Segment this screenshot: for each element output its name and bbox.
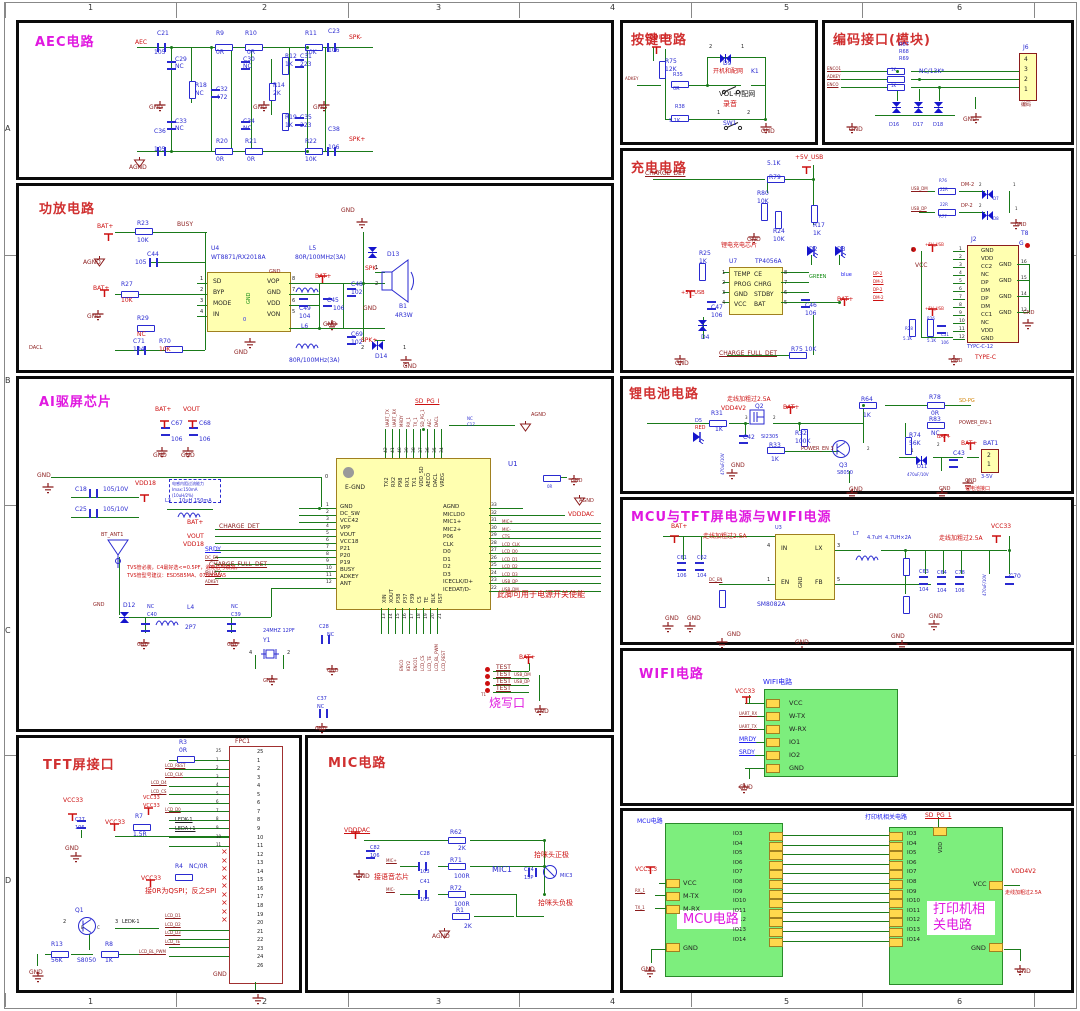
- grid-column-label: 3: [436, 997, 441, 1006]
- label: K1: [751, 69, 759, 75]
- wire: [37, 954, 38, 966]
- wire: [782, 921, 889, 922]
- label: D3: [837, 247, 845, 253]
- label: ADKEY: [205, 580, 218, 584]
- label: 11: [216, 843, 221, 847]
- label: C18: [75, 487, 87, 493]
- label: 22R: [940, 188, 948, 192]
- label: GND: [227, 643, 238, 648]
- label: 5: [257, 793, 260, 798]
- label: LCD_D2: [165, 923, 181, 927]
- label: BYP: [213, 290, 224, 296]
- pady-symbol: [889, 880, 903, 889]
- label: 5: [216, 792, 219, 796]
- label: 105: [154, 147, 165, 153]
- label: XIN: [383, 594, 388, 603]
- label: GND: [149, 105, 163, 111]
- label: 8: [326, 553, 329, 558]
- label: 2K: [458, 846, 466, 852]
- section-title-power-circuit: MCU与TFT屏电源与WIFI电源: [631, 506, 832, 525]
- wire: [921, 337, 953, 338]
- label: FB: [815, 580, 823, 586]
- label: 1K: [863, 413, 871, 419]
- label: GND: [951, 359, 962, 364]
- label: 2: [63, 920, 66, 925]
- label: 24: [257, 955, 263, 960]
- label: DC_SW: [340, 512, 360, 518]
- label: R17: [813, 223, 825, 229]
- label: SPK+: [349, 137, 365, 143]
- label: GND: [999, 263, 1012, 269]
- label: GND: [269, 270, 280, 275]
- label: 1K: [285, 123, 293, 129]
- label: 80R/100MHz(3A): [289, 358, 340, 364]
- label: D16: [889, 123, 899, 128]
- ic-box: [775, 534, 835, 600]
- wire: [423, 608, 424, 634]
- label: GND: [313, 105, 327, 111]
- label: TP4056A: [755, 259, 782, 265]
- pady-symbol: [766, 738, 780, 747]
- label: 106: [805, 311, 816, 317]
- label: C25: [75, 507, 87, 513]
- label: 3: [837, 544, 840, 549]
- label: DACL: [29, 346, 42, 351]
- label: GND: [971, 945, 986, 952]
- label: C43: [953, 451, 965, 457]
- label: 拾咪头负极: [538, 900, 573, 907]
- label: 1K: [699, 259, 707, 265]
- pady-symbol: [766, 699, 780, 708]
- label: 80R/100MHz(3A): [295, 255, 346, 261]
- frame-tick: [348, 2, 349, 18]
- frame-tick: [348, 993, 349, 1007]
- pady-symbol: [666, 943, 680, 952]
- pady-symbol: [769, 890, 783, 899]
- label: 2: [979, 183, 982, 187]
- label: 3-5V: [981, 475, 993, 480]
- label: 电感内阻过流能力: [172, 482, 204, 486]
- label: 打印机相: [931, 903, 987, 916]
- label: 56K: [51, 958, 63, 964]
- label: GND: [65, 846, 79, 852]
- wire: [782, 854, 889, 855]
- label: 2: [987, 453, 991, 459]
- label: 104: [937, 589, 947, 594]
- wire: [119, 617, 271, 618]
- wire: [299, 522, 336, 523]
- label: 5.1K: [903, 337, 912, 341]
- label: 1: [911, 248, 914, 252]
- wire: [773, 423, 863, 424]
- label: DP: [981, 297, 989, 303]
- dotg-symbol: [706, 84, 709, 87]
- label: 3: [959, 264, 962, 269]
- label: 8: [257, 818, 260, 823]
- label: DP: [981, 281, 989, 287]
- label: 走线加粗过2.5A: [703, 534, 747, 540]
- label: RX2: [392, 477, 397, 487]
- pady-symbol: [766, 712, 780, 721]
- label: ICECLK/D+: [443, 580, 473, 586]
- label: GND: [891, 634, 905, 640]
- wire: [169, 956, 229, 957]
- wire: [719, 584, 775, 585]
- label: GND: [1023, 311, 1034, 316]
- label: TE: [425, 597, 430, 603]
- pady-symbol: [769, 918, 783, 927]
- wire: [782, 864, 889, 865]
- label: NC: [467, 417, 473, 421]
- label: MODE: [213, 301, 231, 307]
- label: IO13: [733, 928, 746, 934]
- label: SD-PG: [959, 399, 975, 404]
- label: CTS: [502, 535, 510, 539]
- label: GND: [1015, 223, 1026, 228]
- section-tft-interface: ×××××××××TFT屏接口R30RFPC125123456789101112…: [16, 735, 302, 993]
- wire: [363, 232, 364, 342]
- dotg-symbol: [918, 78, 921, 81]
- q-symbol: [831, 439, 851, 463]
- label: MIC-: [502, 528, 511, 532]
- grid-row-label: D: [5, 876, 11, 885]
- label: 1: [722, 271, 725, 276]
- label: 470uF/10V: [721, 453, 725, 475]
- agnd-symbol: [519, 417, 532, 436]
- wire: [364, 840, 450, 841]
- label: LCD_D2: [502, 565, 518, 569]
- label: RED: [695, 426, 705, 431]
- wire: [215, 578, 336, 579]
- label: AGND: [579, 499, 594, 504]
- pwr-symbol: [139, 487, 150, 506]
- wire: [782, 873, 889, 874]
- label: 2: [747, 111, 750, 116]
- pady-symbol: [769, 870, 783, 879]
- label: IO4: [733, 842, 742, 848]
- label: C40: [147, 613, 157, 618]
- label: VOUT: [187, 534, 204, 540]
- spk-symbol: [381, 258, 417, 308]
- label: 18: [418, 613, 423, 619]
- res-symbol: [452, 913, 470, 920]
- label: GND: [849, 127, 863, 133]
- label: R8: [105, 942, 113, 948]
- label: 7: [292, 288, 295, 293]
- pady-symbol: [889, 870, 903, 879]
- label: 1K: [813, 231, 821, 237]
- label: 1: [1024, 87, 1028, 93]
- label: P06: [443, 535, 453, 541]
- wire: [271, 588, 272, 617]
- dotg-symbol: [318, 507, 321, 510]
- label: G: [1019, 241, 1024, 247]
- label: 20: [432, 613, 437, 619]
- label: J2: [971, 237, 977, 243]
- label: R22: [305, 139, 317, 145]
- wire: [438, 894, 448, 895]
- wire: [115, 232, 207, 233]
- label: 14: [257, 870, 263, 875]
- label: 9: [326, 560, 329, 565]
- pady-symbol: [769, 909, 783, 918]
- pady-symbol: [889, 842, 903, 851]
- label: 10K: [159, 347, 171, 353]
- wire: [81, 830, 82, 838]
- wire: [470, 840, 544, 841]
- label: 105: [154, 50, 165, 56]
- wire: [381, 608, 382, 634]
- label: LCD_D0: [502, 550, 518, 554]
- label: 8: [292, 277, 295, 282]
- dio-symbol: [981, 185, 994, 204]
- wire: [989, 550, 990, 574]
- label: TEMP: [734, 272, 750, 278]
- pady-symbol: [769, 851, 783, 860]
- wire: [745, 716, 765, 717]
- label: GND: [981, 337, 994, 343]
- label: R11: [305, 31, 317, 37]
- wire: [319, 283, 320, 328]
- wire: [470, 894, 516, 895]
- label: ADKEY: [340, 575, 358, 581]
- label: CC1: [981, 313, 992, 319]
- label: ENCO1: [414, 657, 418, 671]
- label: VDD18: [183, 542, 204, 548]
- label: BAT+: [155, 407, 171, 413]
- label: D13: [387, 252, 399, 258]
- label: 走线加粗过2.5A: [727, 397, 771, 403]
- label: 1: [375, 266, 378, 271]
- label: DM: [981, 305, 990, 311]
- label: S8050: [77, 958, 96, 964]
- label: 2: [937, 443, 940, 447]
- pwr-symbol: [991, 528, 1002, 547]
- coil-symbol: [295, 334, 319, 353]
- label: LEDK-1: [122, 920, 140, 925]
- wire: [919, 191, 935, 192]
- label: VOP: [267, 279, 279, 285]
- wire: [782, 835, 889, 836]
- wire: [151, 262, 205, 263]
- label: D8: [993, 217, 999, 221]
- label: C17: [467, 423, 475, 427]
- label: R83: [929, 417, 941, 423]
- label: CC2: [981, 265, 992, 271]
- label: 24: [491, 572, 497, 577]
- label: IO14: [733, 938, 746, 944]
- frame-tick: [691, 2, 692, 18]
- label: R3: [179, 740, 187, 746]
- label: 3: [200, 299, 203, 304]
- label: 13: [383, 613, 388, 619]
- label: 2: [200, 288, 203, 293]
- label: VCC: [734, 302, 746, 308]
- wire: [169, 803, 229, 804]
- label: 30: [491, 527, 497, 532]
- label: 4: [257, 784, 260, 789]
- wire: [438, 866, 448, 867]
- label: C61: [677, 556, 687, 561]
- grid-column-label: 5: [784, 997, 789, 1006]
- frame-tick: [1034, 993, 1035, 1007]
- grid-column-label: 5: [784, 3, 789, 12]
- label: C82: [370, 846, 380, 851]
- label: C38: [328, 127, 340, 133]
- label: R38: [675, 105, 685, 110]
- label: VDD: [981, 329, 993, 335]
- label: 100R: [454, 874, 470, 880]
- label: C24: [524, 868, 534, 873]
- label: GND: [571, 479, 582, 484]
- wire: [782, 941, 889, 942]
- label: 223: [300, 62, 311, 68]
- res-symbol: [448, 863, 466, 870]
- grid-row-label: A: [5, 124, 10, 133]
- frame-tick: [519, 2, 520, 18]
- label: 15: [1021, 277, 1027, 282]
- label: SD_PG_1: [421, 409, 425, 427]
- dotg-symbol: [896, 70, 899, 73]
- section-power-circuit: MCU与TFT屏电源与WIFI电源BAT+走线加粗过2.5AC61106C621…: [620, 497, 1074, 645]
- label: 4: [326, 525, 329, 530]
- label: 20: [257, 921, 263, 926]
- label: R78: [929, 395, 941, 401]
- wire: [255, 655, 256, 669]
- label: GND: [675, 361, 689, 367]
- label: IO9: [733, 890, 742, 896]
- label: GND: [137, 643, 148, 648]
- grid-column-label: 1: [88, 3, 93, 12]
- wire: [745, 729, 765, 730]
- label: LX: [815, 546, 822, 552]
- grid-column-label: 6: [957, 3, 962, 12]
- label: USB_DP: [514, 680, 530, 684]
- label: NC: [231, 605, 238, 610]
- label: IO10: [907, 899, 920, 905]
- cap-symbol: [955, 576, 964, 585]
- label: IO9: [907, 890, 916, 896]
- dio-symbol: [913, 99, 924, 118]
- label: RX1: [406, 477, 411, 487]
- wire: [539, 675, 540, 701]
- label: LCD_TE: [428, 656, 432, 671]
- label: 0R: [216, 50, 224, 56]
- wire: [402, 608, 403, 634]
- wire: [400, 866, 420, 867]
- label: VCC: [789, 700, 803, 707]
- wire: [71, 497, 139, 498]
- label: GND: [789, 765, 804, 772]
- label: RST: [439, 593, 444, 603]
- label: 接语音芯片: [374, 874, 409, 881]
- label: 编码: [1021, 103, 1031, 108]
- label: 2: [722, 281, 725, 286]
- label: 0: [243, 318, 246, 323]
- label: 104: [133, 347, 144, 353]
- label: BLK: [432, 594, 437, 604]
- label: C35: [300, 115, 312, 121]
- label: IN: [213, 312, 219, 318]
- label: blue: [841, 273, 852, 278]
- not-connected-mark: ×: [221, 865, 228, 873]
- label: U1: [508, 461, 518, 468]
- label: BUSY: [340, 568, 355, 574]
- label: 106: [370, 854, 380, 859]
- wire: [863, 423, 864, 443]
- label: 106: [199, 437, 210, 443]
- label: 锂电池接口: [965, 487, 990, 492]
- label: 拾咪头正极: [534, 852, 569, 859]
- label: 105/10V: [103, 487, 128, 493]
- label: AGND: [443, 505, 459, 511]
- label: LCD_BL_PWM: [435, 644, 439, 671]
- wire: [474, 916, 514, 917]
- label: VOL+/配网: [719, 91, 755, 98]
- label: P37: [404, 594, 409, 603]
- dio-symbol: [367, 244, 378, 263]
- label: R72: [450, 886, 462, 892]
- wire: [493, 692, 529, 693]
- label: LCD_CS: [151, 790, 166, 794]
- label: 3: [115, 920, 118, 925]
- label: 0R: [547, 485, 552, 489]
- label: 10K: [137, 238, 149, 244]
- wire: [449, 425, 515, 426]
- wire: [651, 949, 652, 963]
- label: SD: [213, 279, 221, 285]
- label: GND: [981, 249, 994, 255]
- label: R31: [711, 411, 723, 417]
- label: USB_DM: [514, 673, 531, 677]
- cap-symbol: [89, 509, 98, 518]
- label: LCD_D3: [165, 931, 181, 935]
- wire: [1004, 885, 1020, 886]
- wire: [71, 954, 93, 955]
- label: DP-2: [873, 288, 882, 292]
- label: CE: [754, 272, 762, 278]
- label: R12: [285, 54, 297, 60]
- label: IO3: [733, 832, 742, 838]
- label: 472: [216, 95, 227, 101]
- label: GND: [535, 709, 549, 715]
- label: D11: [917, 465, 927, 470]
- label: VDD4V2: [721, 406, 746, 412]
- label: C70: [1009, 574, 1021, 580]
- section-key-circuit: 按键电路VDDIO33R7512KADKEYR350R21D9开机和配网K1VO…: [620, 20, 818, 145]
- label: UART_TX: [386, 409, 390, 427]
- label: R18: [195, 83, 207, 89]
- not-connected-mark: ×: [221, 882, 228, 890]
- label: IO3: [907, 832, 916, 838]
- section-title-amplifier-circuit: 功放电路: [39, 198, 95, 217]
- label: TEST: [496, 686, 511, 692]
- dotg-symbol: [938, 86, 941, 89]
- pady-symbol: [766, 751, 780, 760]
- label: 56K: [909, 441, 921, 447]
- dotg-symbol: [904, 549, 907, 552]
- module-box: [665, 823, 783, 977]
- res-symbol: [448, 837, 466, 844]
- label: B1: [399, 304, 407, 310]
- label: GND: [327, 669, 338, 674]
- label: VDDIO33: [645, 35, 672, 41]
- label: 470uF/10V: [983, 574, 987, 596]
- label: NC: [175, 64, 184, 70]
- label: VDD_SD: [420, 466, 425, 487]
- label: 34: [441, 447, 446, 453]
- label: SPK+: [361, 338, 377, 344]
